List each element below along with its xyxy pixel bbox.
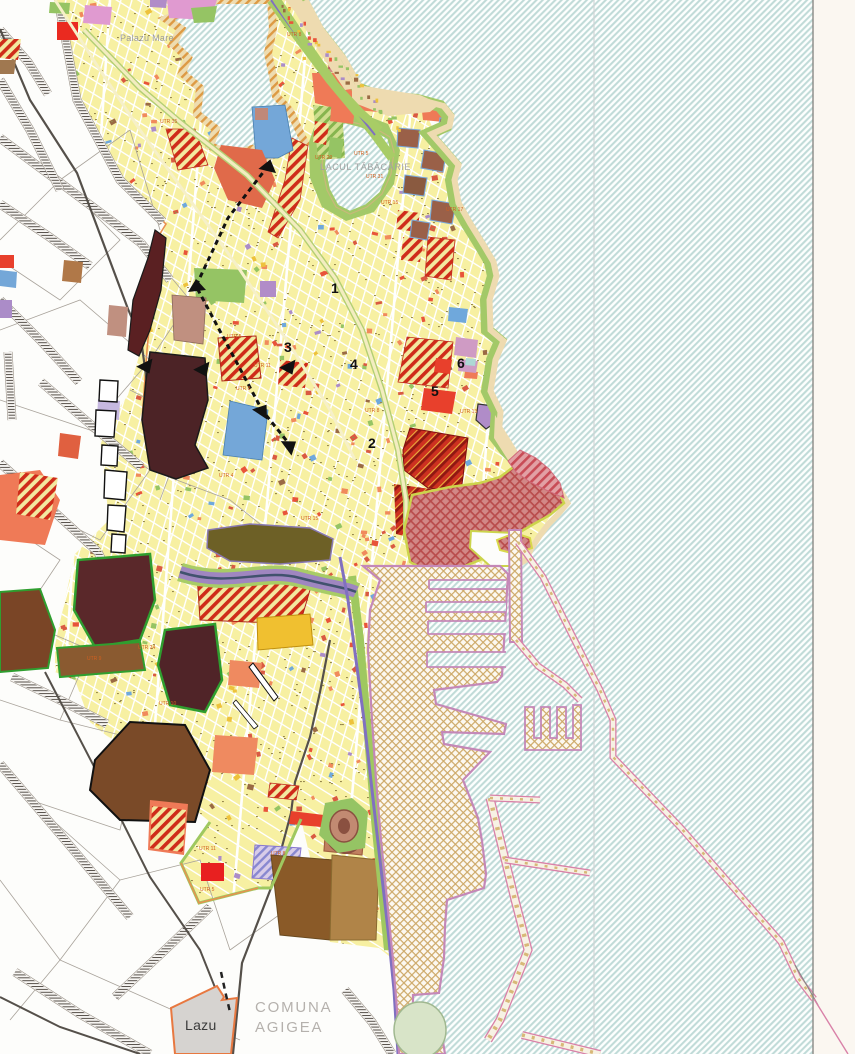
svg-text:3: 3 <box>284 339 292 355</box>
svg-text:UTR 8: UTR 8 <box>236 386 251 392</box>
svg-text:LACUL TĂBĂCĂRIE: LACUL TĂBĂCĂRIE <box>320 162 411 172</box>
svg-text:UTR 10: UTR 10 <box>159 701 176 707</box>
svg-text:UTR 11: UTR 11 <box>254 363 271 369</box>
svg-text:COMUNA: COMUNA <box>255 999 332 1016</box>
svg-text:UTR 5: UTR 5 <box>354 151 369 157</box>
svg-text:UTR 4: UTR 4 <box>219 473 234 479</box>
svg-text:AGIGEA: AGIGEA <box>255 1019 323 1036</box>
svg-text:UTR 8: UTR 8 <box>271 851 286 857</box>
svg-text:UTR 17: UTR 17 <box>446 207 463 213</box>
svg-text:UTR 9: UTR 9 <box>87 656 102 662</box>
svg-text:UTR 20: UTR 20 <box>315 155 332 161</box>
svg-text:UTR 5: UTR 5 <box>227 334 242 340</box>
svg-text:6: 6 <box>457 355 465 371</box>
svg-text:UTR 15: UTR 15 <box>381 200 398 206</box>
svg-text:UTR 31: UTR 31 <box>366 174 383 180</box>
svg-text:UTR 11: UTR 11 <box>199 846 216 852</box>
svg-text:UTR 8: UTR 8 <box>287 32 302 38</box>
svg-text:UTR 8: UTR 8 <box>365 408 380 414</box>
svg-text:Lazu: Lazu <box>185 1017 217 1033</box>
svg-text:Palazu Mare: Palazu Mare <box>120 33 174 43</box>
svg-text:4: 4 <box>350 356 358 372</box>
svg-text:UTR 24: UTR 24 <box>138 645 155 651</box>
svg-text:UTR 13: UTR 13 <box>460 409 477 415</box>
svg-text:UTR 15: UTR 15 <box>301 516 318 522</box>
svg-text:UTR 5: UTR 5 <box>200 887 215 893</box>
svg-text:1: 1 <box>331 280 339 296</box>
svg-text:5: 5 <box>431 383 439 399</box>
svg-text:2: 2 <box>368 435 376 451</box>
svg-text:UTR 35: UTR 35 <box>160 119 177 125</box>
